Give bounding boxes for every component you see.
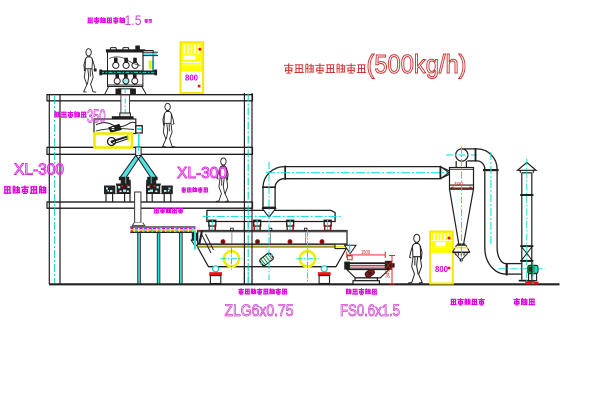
svg-text:ZLG6x0.75: ZLG6x0.75: [225, 302, 294, 320]
svg-text:(500kg/h): (500kg/h): [367, 49, 467, 79]
svg-text:800: 800: [185, 73, 199, 82]
svg-text:1500: 1500: [361, 250, 370, 256]
svg-text:XL-300: XL-300: [14, 162, 64, 179]
svg-text:FS0.6x1.5: FS0.6x1.5: [340, 302, 400, 320]
svg-text:XL-300: XL-300: [177, 165, 227, 182]
svg-text:345: 345: [386, 269, 392, 278]
svg-text:800: 800: [435, 265, 449, 274]
svg-text:350: 350: [87, 106, 106, 126]
svg-text:1.5: 1.5: [125, 13, 142, 28]
